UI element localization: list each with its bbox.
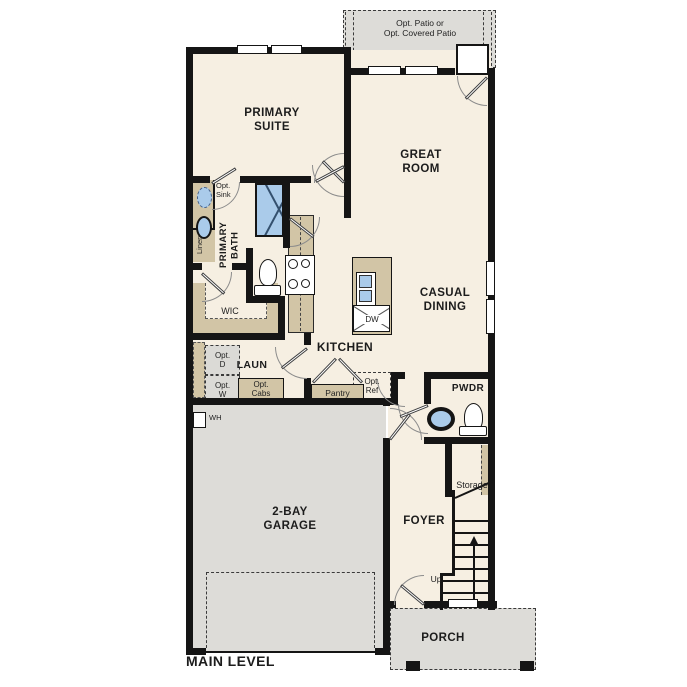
opt-cabs-label: Opt. Cabs [239,380,283,398]
powder-toilet-tank [459,426,487,436]
laundry-cabinet [193,342,205,398]
window [368,66,401,75]
wall [383,438,390,655]
wall [246,248,253,303]
great-room-label: GREAT ROOM [376,148,466,177]
water-heater-label: WH [209,414,229,423]
wall [186,47,193,655]
wall [240,176,311,183]
up-arrow-icon [469,536,479,546]
sink-basin [359,275,372,288]
wic-label: WIC [214,306,246,316]
foyer-label: FOYER [400,514,448,528]
optional-sink-fixture [197,187,212,208]
window [486,299,495,334]
wall [375,648,390,655]
stair-tread [455,556,489,558]
shower [255,183,284,237]
wall [186,176,210,183]
opt-dryer-label: Opt. D [206,351,239,369]
powder-sink [427,407,455,431]
wall [424,372,431,404]
dishwasher-label: DW [361,315,383,324]
range-stove [285,255,315,295]
shower-cross-line [264,183,284,236]
stair-direction-line [473,545,475,601]
opt-ref-label: Opt. Ref [354,377,390,395]
garage-label: 2-BAY GARAGE [248,505,332,534]
stair-tread [455,520,489,522]
burner [288,279,298,289]
stair-tread [443,592,489,594]
linen-label: Linen [196,231,211,259]
wall [186,263,202,270]
water-heater [193,412,206,428]
patio-label: Opt. Patio or Opt. Covered Patio [358,19,482,39]
storage-label: Storage [450,480,494,490]
porch-label: PORCH [413,631,473,645]
burner [301,279,310,288]
window [271,45,302,54]
wall [424,372,494,379]
primary-suite-label: PRIMARY SUITE [222,106,322,135]
floor-plan: DW [0,0,687,687]
window [448,599,478,608]
wall [488,68,495,610]
wall [186,333,285,340]
porch-column-right [520,661,534,671]
opt-sink-label: Opt. Sink [216,182,242,199]
powder-label: PWDR [445,383,491,396]
wall [424,437,494,444]
stair-tread [455,568,489,570]
dishwasher: DW [353,305,390,332]
stair-tread [443,580,489,582]
patio-door-panel [456,44,489,75]
casual-dining-label: CASUAL DINING [407,286,483,315]
wall [283,176,290,248]
burner [288,259,298,269]
opt-washer-label: Opt. W [206,381,239,399]
primary-bath-label: PRIMARY BATH [218,198,244,292]
bath-toilet-tank [254,285,281,296]
level-title: MAIN LEVEL [186,653,316,671]
bath-toilet-bowl [259,259,277,286]
up-label: Up [426,575,446,585]
island-sink [356,272,376,306]
window [486,261,495,296]
porch-column-left [406,661,420,671]
wall [391,372,405,379]
window [405,66,438,75]
wall [186,47,351,54]
stair-tread [455,532,489,534]
window [237,45,268,54]
burner [301,259,310,268]
garage-door-outline [206,572,375,648]
kitchen-label: KITCHEN [308,340,382,355]
sink-basin [359,290,372,302]
